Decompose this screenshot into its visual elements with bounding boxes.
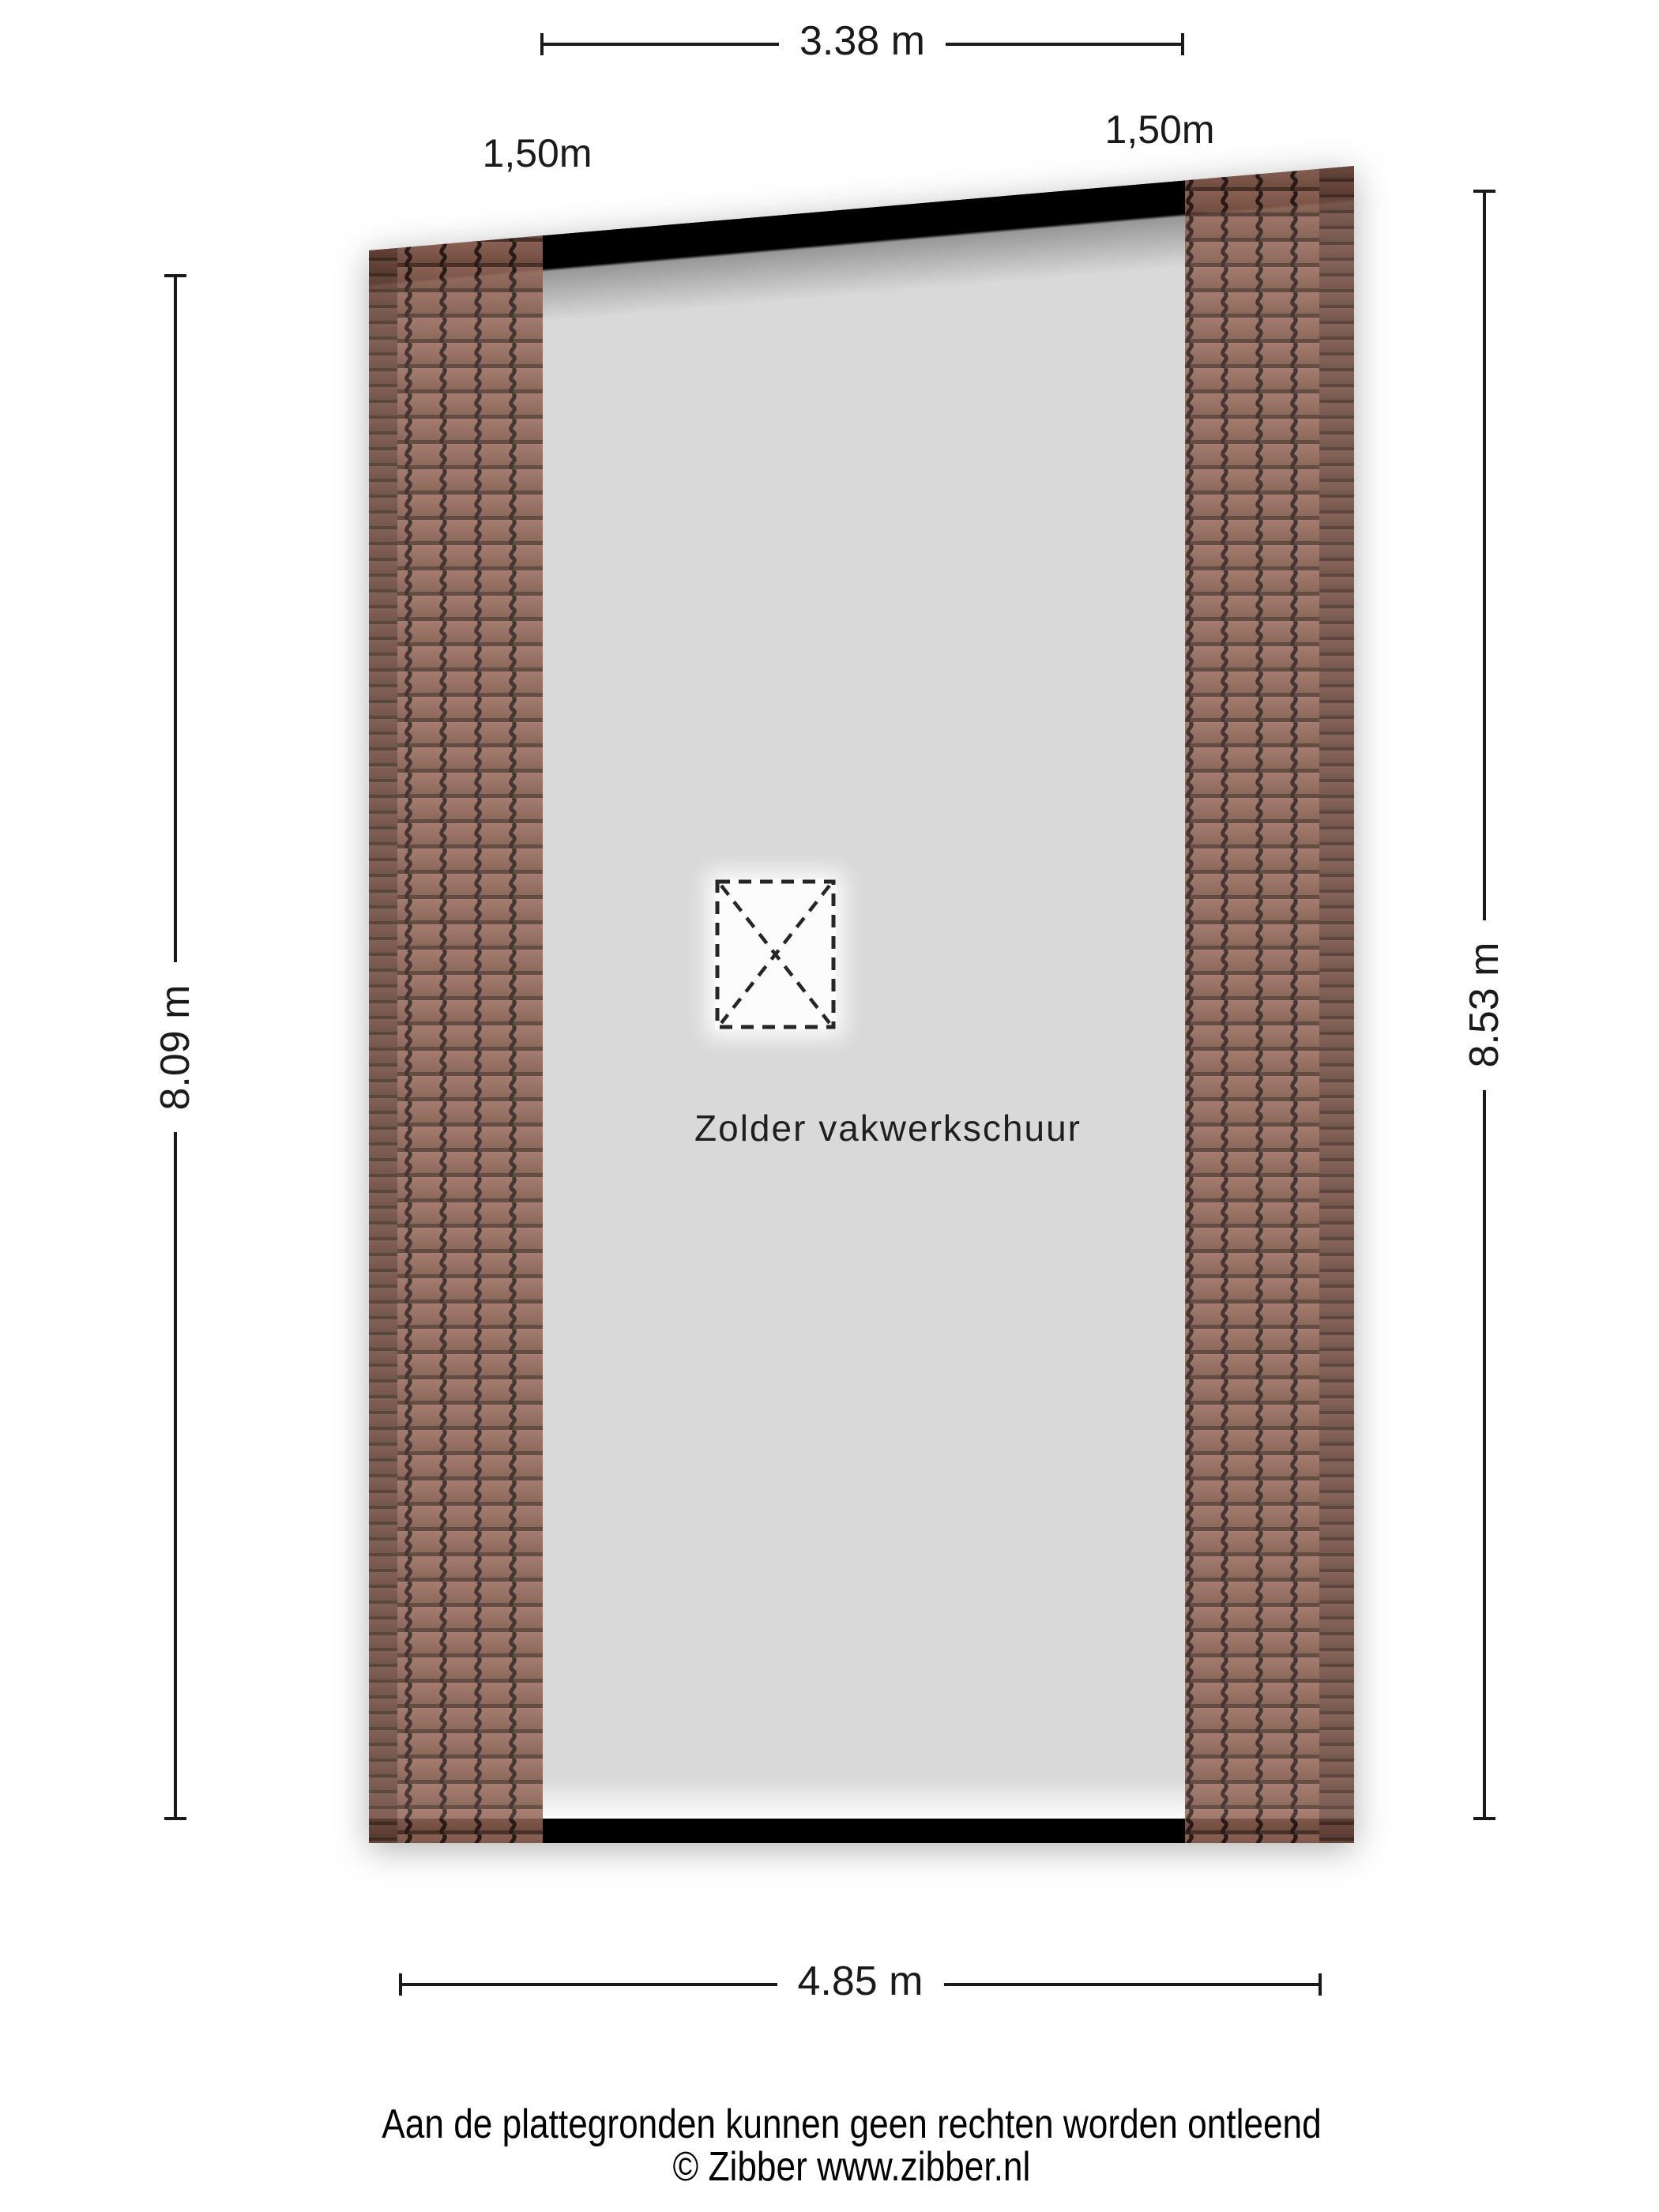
building: Zolder vakwerkschuur: [369, 166, 1354, 1843]
copyright-text: © Zibber www.zibber.nl: [382, 2146, 1321, 2188]
room-label: Zolder vakwerkschuur: [694, 1107, 1082, 1149]
dimension-tick: [1473, 1817, 1495, 1820]
dimension-bottom: 4.85 m: [399, 1973, 1322, 1996]
roof-width-label-right: 1,50m: [1105, 110, 1215, 149]
roof-tiles-right: [1185, 166, 1354, 1843]
roof-tiles-left: [369, 166, 543, 1843]
dimension-top: 3.38 m: [540, 33, 1184, 55]
dimension-line: [1483, 193, 1486, 920]
roof-opening-marks: [715, 879, 836, 1029]
dimension-line: [1483, 1090, 1486, 1818]
floorplan-page: { "plan": { "room_label": "Zolder vakwer…: [0, 0, 1659, 2212]
dimension-tick: [164, 1817, 186, 1820]
dimension-line: [402, 1983, 777, 1986]
dimension-tick: [1181, 33, 1184, 55]
dimension-left: 8.09 m: [162, 274, 189, 1820]
dimension-line: [544, 43, 779, 46]
dimension-tick: [1319, 1973, 1322, 1996]
roof-opening: [715, 879, 836, 1029]
dimension-top-label: 3.38 m: [779, 21, 946, 62]
dimension-bottom-label: 4.85 m: [777, 1961, 944, 2002]
dimension-line: [944, 1983, 1319, 1986]
footer: Aan de plattegronden kunnen geen rechten…: [299, 2103, 1404, 2188]
dimension-line: [174, 277, 177, 962]
dimension-right-label: 8.53 m: [1471, 920, 1498, 1090]
dimension-line: [946, 43, 1181, 46]
dimension-right: 8.53 m: [1471, 190, 1498, 1820]
disclaimer-text: Aan de plattegronden kunnen geen rechten…: [382, 2103, 1321, 2146]
building-outline: Zolder vakwerkschuur: [369, 166, 1354, 1843]
dimension-left-label: 8.09 m: [162, 962, 189, 1132]
dimension-line: [174, 1132, 177, 1817]
